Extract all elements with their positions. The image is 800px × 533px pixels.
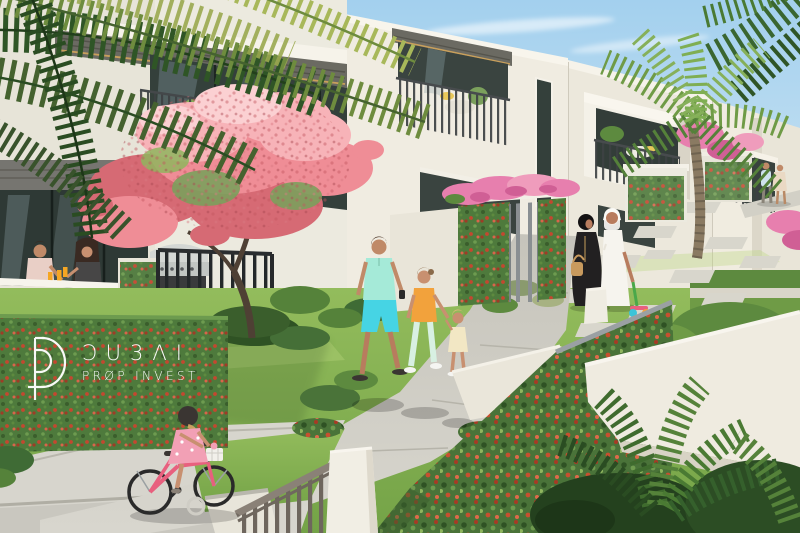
rendering-scene [0, 0, 800, 533]
townhouse-community-rendering: ƆU3ΛI PRØP INVEST [0, 0, 800, 533]
handbag [571, 262, 583, 276]
grey-slat-gate [510, 202, 538, 302]
juice-glass [57, 270, 62, 281]
juice-glass [63, 267, 68, 277]
